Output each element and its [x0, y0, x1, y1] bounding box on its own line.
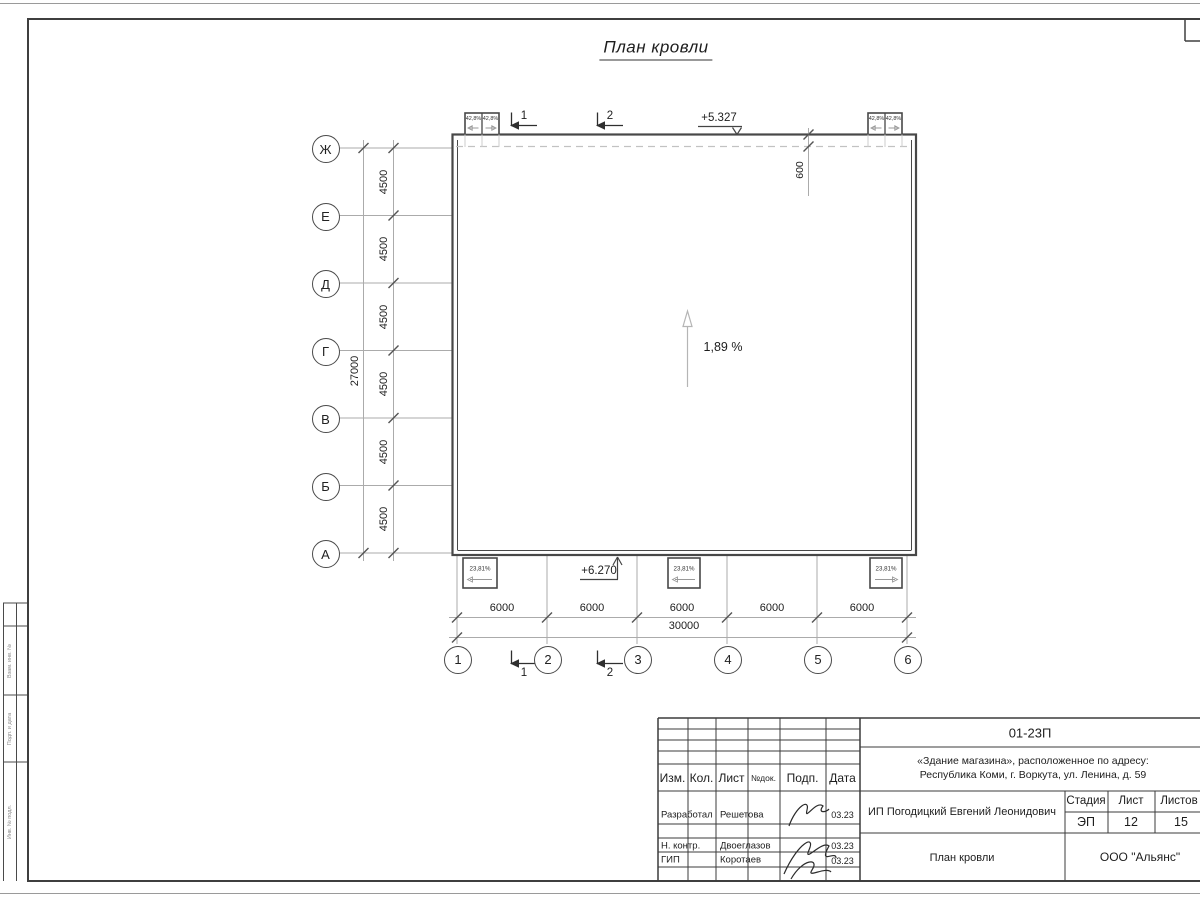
tb-header-0: Изм. — [660, 771, 686, 785]
dim-4500-5: 4500 — [378, 507, 390, 531]
section-mark-bottom-2: 2 — [607, 667, 613, 679]
axis-bubble-row-2-label: Д — [321, 277, 330, 292]
slope-label: 1,89 % — [704, 340, 743, 354]
axis-bubble-row-1: Е — [312, 203, 340, 231]
axis-bubble-col-0-label: 1 — [454, 652, 461, 667]
dim-total-horizontal: 30000 — [669, 620, 700, 632]
sheet-label: Лист — [1119, 795, 1144, 807]
axis-bubble-row-6-label: А — [321, 547, 330, 562]
dim-6000-4: 6000 — [850, 602, 874, 614]
tb-name-0: Решетова — [720, 809, 764, 820]
dim-4500-0: 4500 — [378, 170, 390, 194]
axis-bubble-col-1-label: 2 — [544, 652, 551, 667]
side-stamp-label-1: Подп. и дата — [7, 712, 13, 744]
axis-bubble-col-1: 2 — [534, 646, 562, 674]
axis-bubble-col-5-label: 6 — [904, 652, 911, 667]
axis-bubble-row-0: Ж — [312, 135, 340, 163]
tb-role-1: Н. контр. — [661, 840, 700, 851]
section-mark-bottom-1: 1 — [521, 667, 527, 679]
tb-date-0: 03.23 — [831, 810, 854, 820]
funnel-slope-label-1: 42,8% — [483, 116, 499, 122]
axis-bubble-col-3-label: 4 — [724, 652, 731, 667]
tb-header-3: №док. — [751, 773, 776, 783]
drawing-sheet: План кровли +5.327 +6.270 600 1,89 % 270… — [0, 0, 1200, 900]
axis-bubble-row-0-label: Ж — [319, 142, 331, 157]
dim-6000-0: 6000 — [490, 602, 514, 614]
tb-date-1: 03.23 — [831, 841, 854, 851]
sheets-value: 15 — [1174, 815, 1188, 829]
dim-4500-1: 4500 — [378, 237, 390, 261]
dim-6000-1: 6000 — [580, 602, 604, 614]
funnel-slope-label-0: 42,8% — [466, 116, 482, 122]
page-title: План кровли — [599, 38, 712, 61]
canopy-slope-label-1: 23,81% — [674, 566, 695, 573]
axis-bubble-row-4-label: В — [321, 412, 330, 427]
axis-bubble-col-4-label: 5 — [814, 652, 821, 667]
titleblock-address-line2: Республика Коми, г. Воркута, ул. Ленина,… — [920, 769, 1147, 781]
dim-total-vertical: 27000 — [349, 356, 361, 387]
sheet-value: 12 — [1124, 815, 1138, 829]
dim-4500-4: 4500 — [378, 440, 390, 464]
dim-4500-2: 4500 — [378, 305, 390, 329]
canopy-slope-label-0: 23,81% — [470, 566, 491, 573]
funnel-slope-label-2: 42,8% — [869, 116, 885, 122]
tb-date-2: 03.23 — [831, 856, 854, 866]
funnel-slope-label-3: 42,8% — [886, 116, 902, 122]
axis-bubble-row-5-label: Б — [321, 479, 330, 494]
elevation-top-label: +5.327 — [701, 112, 737, 124]
axis-bubble-row-5: Б — [312, 473, 340, 501]
section-mark-top-1: 1 — [521, 110, 527, 122]
axis-bubble-row-2: Д — [312, 270, 340, 298]
dim-4500-3: 4500 — [378, 372, 390, 396]
axis-bubble-row-3-label: Г — [322, 344, 329, 359]
axis-bubble-col-2: 3 — [624, 646, 652, 674]
elevation-bottom-label: +6.270 — [581, 565, 617, 577]
tb-header-1: Кол. — [690, 771, 714, 785]
titleblock-company: ООО "Альянс" — [1100, 850, 1180, 864]
titleblock-doc-number: 01-23П — [1009, 726, 1052, 741]
titleblock-client: ИП Погодицкий Евгений Леонидович — [868, 806, 1056, 818]
section-mark-top-2: 2 — [607, 110, 613, 122]
stage-label: Стадия — [1066, 795, 1105, 807]
tb-header-5: Дата — [829, 771, 856, 785]
axis-bubble-row-1-label: Е — [321, 209, 330, 224]
axis-bubble-col-5: 6 — [894, 646, 922, 674]
side-stamp-label-2: Инв. № подл. — [7, 804, 13, 838]
tb-name-2: Коротаев — [720, 855, 761, 866]
axis-bubble-col-0: 1 — [444, 646, 472, 674]
titleblock-address-line1: «Здание магазина», расположенное по адре… — [917, 755, 1149, 767]
tb-name-1: Двоеглазов — [720, 840, 771, 851]
roof-offset-dim: 600 — [794, 161, 806, 179]
canopy-slope-label-2: 23,81% — [876, 566, 897, 573]
tb-role-0: Разработал — [661, 809, 713, 820]
axis-bubble-row-6: А — [312, 540, 340, 568]
axis-bubble-row-4: В — [312, 405, 340, 433]
dim-6000-3: 6000 — [760, 602, 784, 614]
dim-6000-2: 6000 — [670, 602, 694, 614]
sheets-label: Листов — [1160, 795, 1197, 807]
axis-bubble-col-3: 4 — [714, 646, 742, 674]
titleblock-sheet-title: План кровли — [930, 852, 995, 864]
axis-bubble-col-4: 5 — [804, 646, 832, 674]
side-stamp-label-0: Взам. инв. № — [7, 643, 13, 677]
stage-value: ЭП — [1077, 815, 1095, 829]
tb-role-2: ГИП — [661, 855, 680, 866]
axis-bubble-row-3: Г — [312, 338, 340, 366]
tb-header-4: Подп. — [787, 771, 819, 785]
axis-bubble-col-2-label: 3 — [634, 652, 641, 667]
tb-header-2: Лист — [718, 771, 744, 785]
